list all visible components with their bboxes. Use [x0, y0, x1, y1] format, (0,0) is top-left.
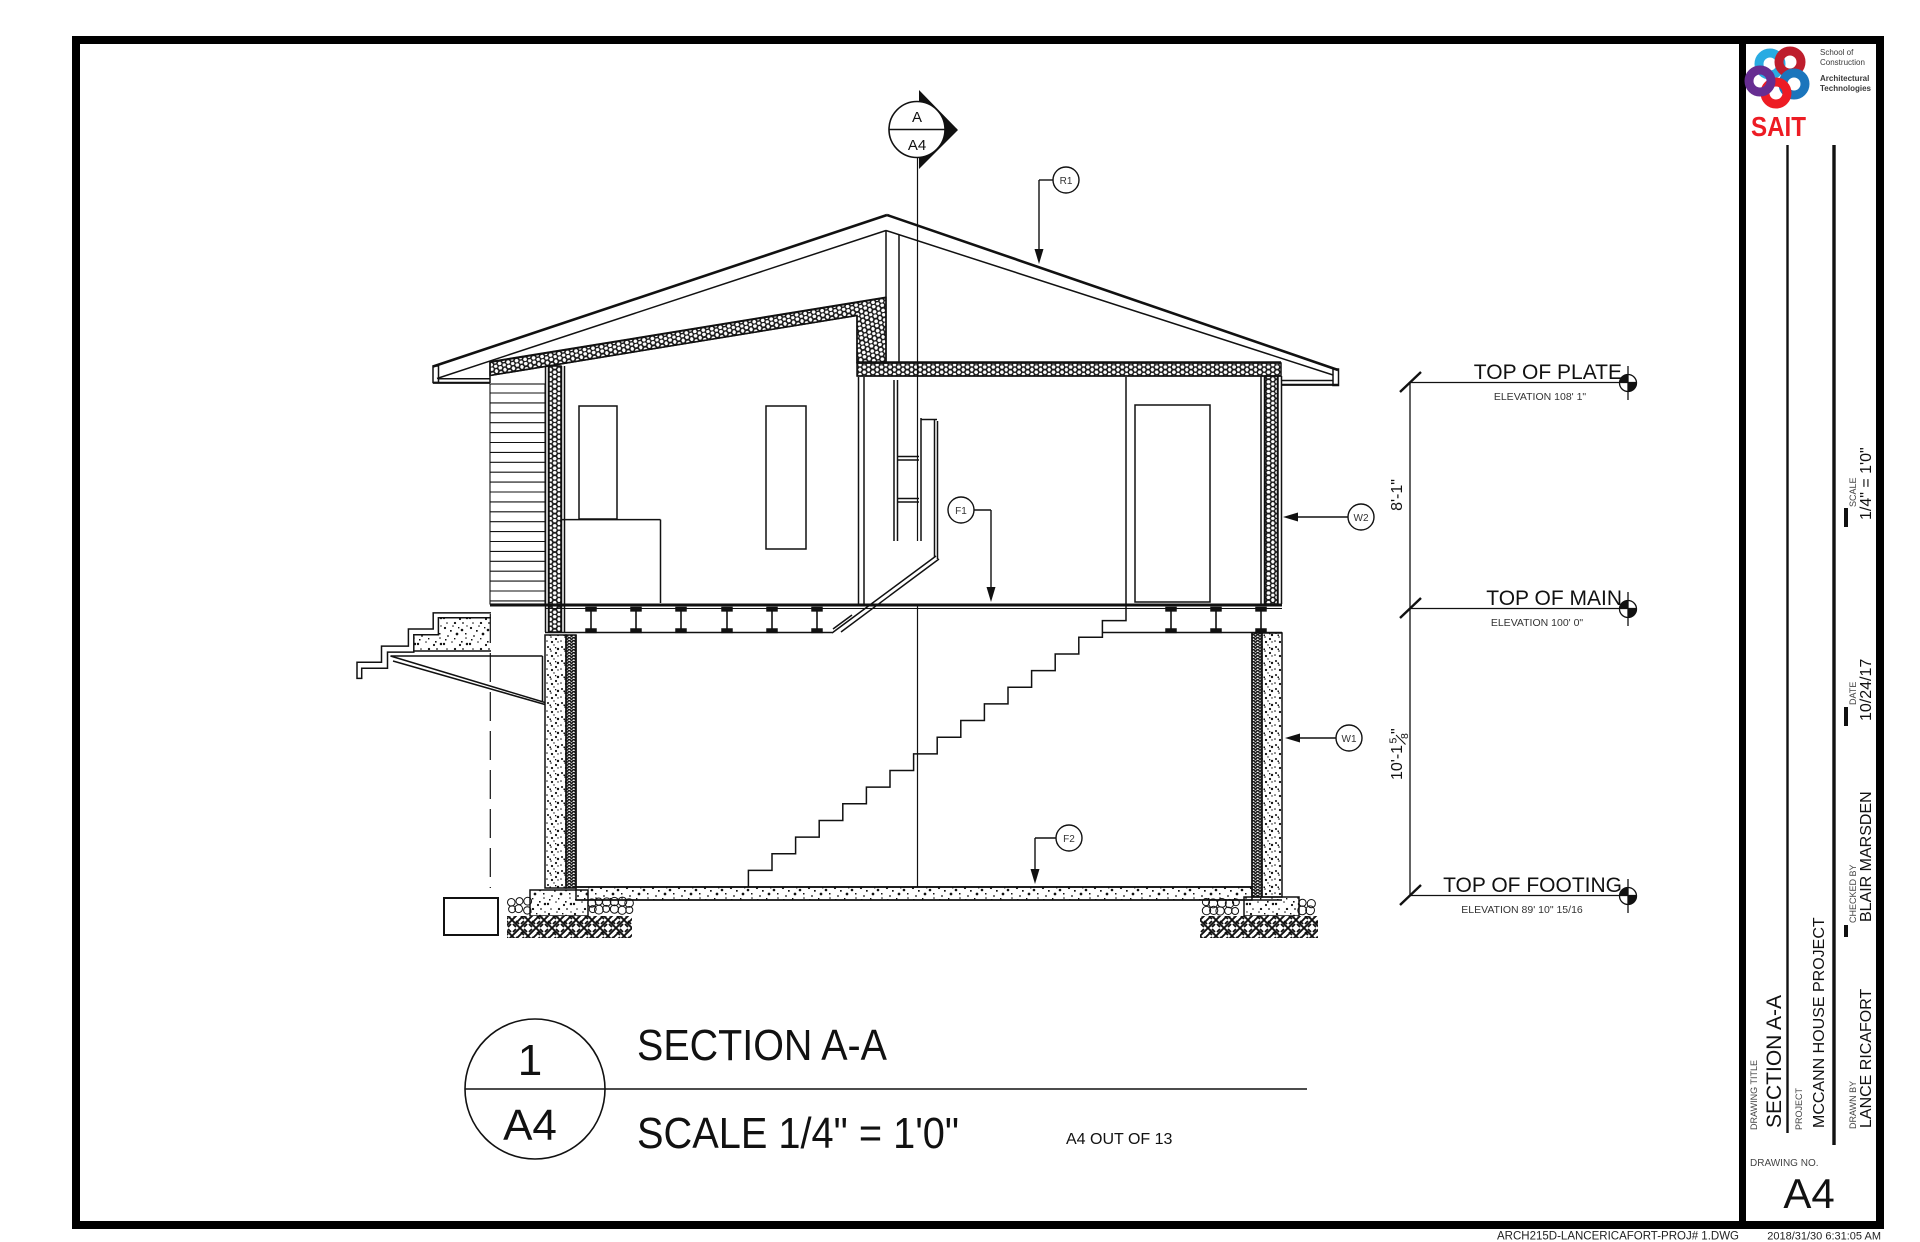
svg-text:SECTION A-A: SECTION A-A	[1763, 995, 1786, 1128]
svg-text:10'-1: 10'-1	[1389, 745, 1406, 780]
svg-text:SECTION A-A: SECTION A-A	[637, 1021, 888, 1070]
svg-text:SCALE: SCALE	[1848, 477, 1858, 507]
svg-text:1/4" = 1'0": 1/4" = 1'0"	[1858, 447, 1875, 520]
svg-text:TOP OF FOOTING: TOP OF FOOTING	[1443, 874, 1622, 897]
svg-text:PROJECT: PROJECT	[1794, 1087, 1804, 1130]
svg-text:10/24/17: 10/24/17	[1858, 659, 1875, 721]
svg-text:W1: W1	[1342, 734, 1357, 745]
svg-text:School of: School of	[1820, 48, 1854, 57]
svg-text:A4 OUT OF 13: A4 OUT OF 13	[1066, 1131, 1173, 1148]
svg-text:DRAWING NO.: DRAWING NO.	[1750, 1158, 1819, 1169]
svg-text:SAIT: SAIT	[1751, 111, 1806, 142]
svg-text:LANCE RICAFORT: LANCE RICAFORT	[1858, 988, 1875, 1128]
svg-text:A: A	[912, 109, 922, 126]
svg-text:1: 1	[518, 1036, 542, 1085]
svg-text:DRAWING TITLE: DRAWING TITLE	[1749, 1060, 1759, 1130]
svg-text:": "	[1389, 728, 1406, 734]
svg-text:Technologies: Technologies	[1820, 84, 1872, 93]
svg-text:ELEVATION 89' 10" 15/16: ELEVATION 89' 10" 15/16	[1461, 904, 1583, 916]
svg-text:TOP OF PLATE: TOP OF PLATE	[1474, 361, 1622, 384]
svg-text:MCCANN HOUSE PROJECT: MCCANN HOUSE PROJECT	[1811, 917, 1828, 1128]
svg-text:SCALE 1/4" = 1'0": SCALE 1/4" = 1'0"	[637, 1109, 959, 1158]
svg-text:TOP OF MAIN: TOP OF MAIN	[1486, 587, 1622, 610]
svg-text:Construction: Construction	[1820, 58, 1865, 67]
svg-text:ARCH215D-LANCERICAFORT-PROJ# 1: ARCH215D-LANCERICAFORT-PROJ# 1.DWG	[1497, 1231, 1739, 1242]
svg-text:R1: R1	[1060, 176, 1073, 187]
svg-text:DATE: DATE	[1848, 682, 1858, 705]
svg-text:A4: A4	[1783, 1170, 1834, 1217]
svg-text:A4: A4	[503, 1101, 557, 1150]
svg-text:ELEVATION 108' 1": ELEVATION 108' 1"	[1494, 391, 1587, 403]
svg-text:2018/31/30 6:31:05 AM: 2018/31/30 6:31:05 AM	[1767, 1231, 1881, 1242]
svg-text:5: 5	[1388, 738, 1400, 744]
svg-text:8'-1": 8'-1"	[1389, 479, 1406, 511]
svg-text:BLAIR MARSDEN: BLAIR MARSDEN	[1858, 791, 1875, 922]
svg-text:Architectural: Architectural	[1820, 74, 1869, 83]
svg-text:DRAWN BY: DRAWN BY	[1848, 1081, 1858, 1129]
svg-text:F1: F1	[955, 506, 967, 517]
svg-text:ELEVATION 100' 0": ELEVATION 100' 0"	[1491, 617, 1584, 629]
svg-text:F2: F2	[1063, 834, 1075, 845]
svg-text:CHECKED BY: CHECKED BY	[1848, 864, 1858, 923]
svg-text:W2: W2	[1354, 513, 1369, 524]
svg-text:A4: A4	[908, 137, 926, 154]
